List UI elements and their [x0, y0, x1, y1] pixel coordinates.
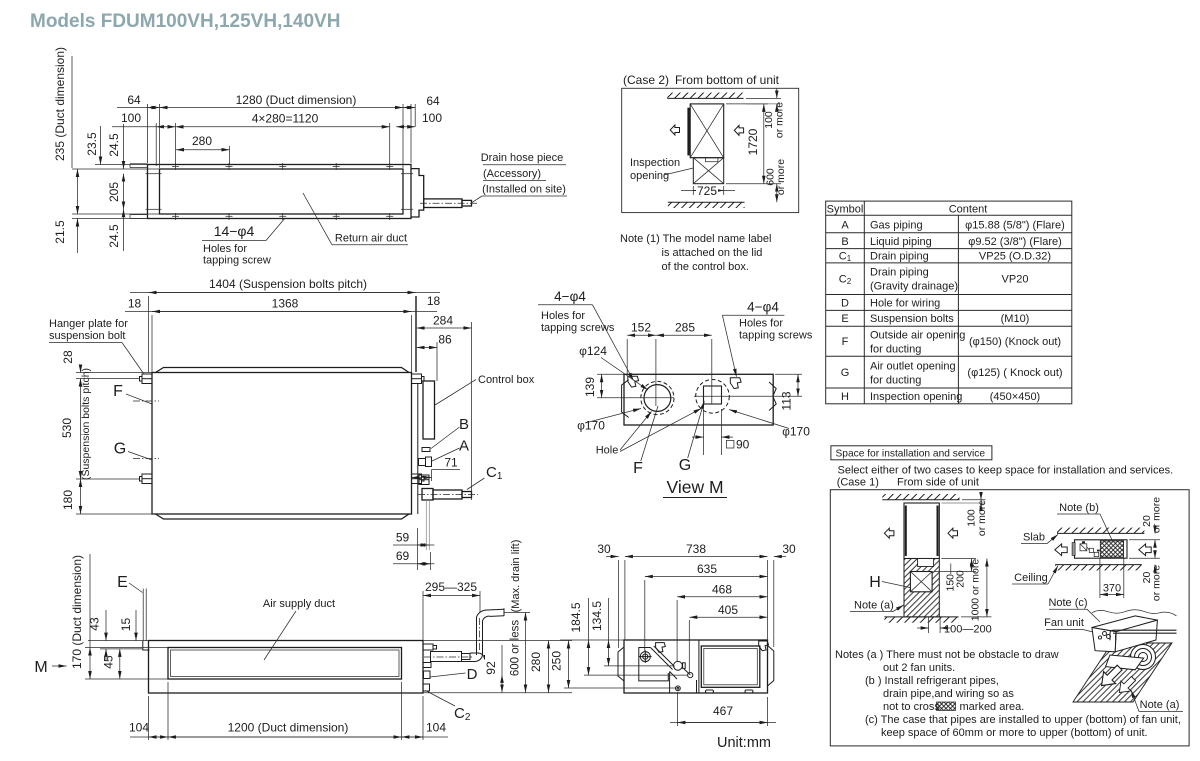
svg-text:Gas piping: Gas piping	[870, 220, 923, 232]
svg-text:134.5: 134.5	[590, 601, 604, 631]
svg-text:A: A	[459, 438, 469, 455]
svg-text:4−φ4: 4−φ4	[554, 289, 586, 304]
svg-text:180: 180	[61, 490, 75, 510]
svg-text:tapping screws: tapping screws	[739, 330, 813, 342]
svg-text:B: B	[841, 236, 848, 248]
svg-text:(φ125) ( Knock out): (φ125) ( Knock out)	[967, 367, 1062, 379]
svg-text:Content: Content	[949, 204, 988, 216]
svg-text:D: D	[841, 298, 849, 310]
svg-text:113: 113	[780, 391, 794, 410]
svg-text:Liquid piping: Liquid piping	[870, 236, 932, 248]
svg-text:Holes for: Holes for	[739, 318, 783, 330]
svg-text:G: G	[841, 367, 850, 379]
svg-text:100: 100	[422, 111, 442, 125]
svg-text:Hanger plate for: Hanger plate for	[49, 318, 128, 330]
svg-text:for ducting: for ducting	[870, 344, 921, 356]
svg-text:250: 250	[550, 651, 564, 671]
svg-text:30: 30	[597, 542, 611, 556]
svg-text:100: 100	[121, 111, 141, 125]
svg-text:for ducting: for ducting	[870, 375, 921, 387]
svg-text:235 (Duct dimension): 235 (Duct dimension)	[53, 47, 67, 161]
svg-text:not to cross: not to cross	[883, 701, 940, 713]
svg-text:H: H	[869, 574, 881, 591]
svg-text:marked area.: marked area.	[960, 701, 1025, 713]
svg-text:Outside air opening: Outside air opening	[870, 330, 965, 342]
svg-text:Control box: Control box	[478, 374, 535, 386]
svg-text:E: E	[117, 574, 128, 591]
svg-text:24.5: 24.5	[107, 224, 121, 248]
svg-text:Slab: Slab	[1023, 532, 1045, 544]
svg-text:Holes for: Holes for	[203, 243, 247, 255]
svg-text:1200 (Duct dimension): 1200 (Duct dimension)	[228, 721, 349, 735]
svg-text:(φ150) (Knock out): (φ150) (Knock out)	[969, 336, 1061, 348]
svg-text:170 (Duct dimension): 170 (Duct dimension)	[70, 555, 84, 669]
svg-text:out 2 fan units.: out 2 fan units.	[883, 662, 955, 674]
svg-text:Select either of two cases to: Select either of two cases to keep space…	[838, 465, 1174, 477]
svg-text:200: 200	[955, 570, 967, 588]
svg-text:C2: C2	[454, 705, 471, 723]
svg-text:59: 59	[396, 531, 410, 545]
svg-text:drain pipe,and wiring so as: drain pipe,and wiring so as	[883, 688, 1014, 700]
svg-text:4×280=1120: 4×280=1120	[252, 112, 319, 126]
svg-text:(c) The case that pipes are i: (c) The case that pipes are installed to…	[865, 714, 1181, 726]
svg-text:is attached on the lid: is attached on the lid	[662, 247, 763, 259]
svg-text:D: D	[467, 666, 478, 683]
svg-text:or more: or more	[1151, 497, 1163, 533]
svg-text:(Suspension bolts pitch): (Suspension bolts pitch)	[80, 368, 92, 480]
svg-text:468: 468	[712, 583, 732, 597]
svg-text:(Accessory): (Accessory)	[483, 168, 541, 180]
svg-text:Note (b): Note (b)	[1059, 502, 1099, 514]
svg-text:F: F	[633, 460, 643, 477]
svg-text:or more: or more	[1151, 565, 1163, 601]
svg-text:F: F	[842, 336, 849, 348]
svg-text:(Case 1): (Case 1)	[837, 477, 879, 489]
svg-text:Note (a): Note (a)	[854, 600, 894, 612]
svg-text:45: 45	[102, 655, 116, 669]
svg-text:18: 18	[427, 294, 441, 308]
svg-text:(Installed on site): (Installed on site)	[482, 184, 566, 196]
svg-text:or more: or more	[976, 500, 988, 536]
svg-text:43: 43	[88, 617, 102, 631]
svg-text:Holes for: Holes for	[541, 310, 585, 322]
svg-text:64: 64	[127, 93, 141, 107]
svg-text:(b ) Install refrigerant pipe: (b ) Install refrigerant pipes,	[865, 675, 999, 687]
svg-text:467: 467	[713, 704, 733, 718]
svg-text:Drain piping: Drain piping	[870, 251, 929, 263]
svg-text:φ170: φ170	[782, 425, 810, 439]
svg-text:F: F	[113, 383, 123, 400]
svg-text:or more: or more	[774, 102, 786, 138]
svg-text:VP25 (O.D.32): VP25 (O.D.32)	[979, 251, 1051, 263]
svg-text:Space for installation and ser: Space for installation and service	[836, 449, 986, 460]
svg-text:E: E	[841, 313, 848, 325]
svg-text:Models FDUM100VH,125VH,140VH: Models FDUM100VH,125VH,140VH	[30, 11, 340, 32]
svg-text:14−φ4: 14−φ4	[214, 223, 255, 239]
svg-text:280: 280	[529, 652, 543, 672]
svg-text:View M: View M	[666, 477, 723, 497]
svg-text:Air outlet opening: Air outlet opening	[870, 361, 956, 373]
svg-text:184.5: 184.5	[569, 602, 583, 632]
svg-text:φ170: φ170	[577, 419, 605, 433]
svg-text:From side of unit: From side of unit	[897, 477, 979, 489]
svg-text:30: 30	[782, 542, 796, 556]
svg-text:Ceiling: Ceiling	[1014, 572, 1048, 584]
svg-text:86: 86	[438, 333, 452, 347]
svg-text:725: 725	[697, 184, 717, 198]
svg-text:370: 370	[1103, 582, 1121, 594]
svg-text:B: B	[459, 416, 469, 433]
svg-text:635: 635	[697, 562, 717, 576]
svg-text:keep space of 60mm or more to: keep space of 60mm or more to upper (bot…	[881, 727, 1148, 739]
svg-text:H: H	[841, 391, 849, 403]
svg-text:1368: 1368	[272, 297, 299, 311]
svg-text:139: 139	[583, 377, 597, 397]
svg-text:90: 90	[736, 437, 750, 451]
svg-text:Symbol: Symbol	[827, 204, 864, 216]
svg-text:Hole for wiring: Hole for wiring	[870, 298, 940, 310]
svg-text:21.5: 21.5	[53, 220, 67, 244]
svg-text:Fan unit: Fan unit	[1044, 617, 1084, 629]
svg-text:(M10): (M10)	[1001, 313, 1030, 325]
svg-text:1280 (Duct dimension): 1280 (Duct dimension)	[236, 93, 357, 107]
svg-text:64: 64	[426, 94, 440, 108]
svg-text:(Max. drain lift): (Max. drain lift)	[510, 540, 522, 613]
svg-text:104: 104	[129, 721, 149, 735]
svg-text:C1: C1	[839, 251, 852, 264]
svg-text:530: 530	[60, 418, 74, 438]
svg-text:of the control box.: of the control box.	[662, 261, 749, 273]
svg-text:104: 104	[426, 721, 446, 735]
svg-text:Inspection opening: Inspection opening	[870, 391, 962, 403]
svg-text:VP20: VP20	[1002, 274, 1029, 286]
svg-text:φ9.52 (3/8") (Flare): φ9.52 (3/8") (Flare)	[968, 236, 1062, 248]
svg-text:152: 152	[631, 321, 651, 335]
svg-text:100—200: 100—200	[944, 624, 992, 636]
svg-text:(Case 2): (Case 2)	[623, 73, 669, 87]
svg-text:18: 18	[128, 297, 142, 311]
svg-text:15: 15	[119, 618, 133, 632]
svg-text:M: M	[34, 659, 47, 676]
svg-text:Drain hose piece: Drain hose piece	[481, 152, 564, 164]
svg-text:1404 (Suspension bolts pitch): 1404 (Suspension bolts pitch)	[209, 277, 367, 291]
svg-text:295—325: 295—325	[425, 580, 477, 594]
svg-text:A: A	[841, 220, 849, 232]
svg-text:From bottom of unit: From bottom of unit	[675, 73, 780, 87]
svg-text:φ124: φ124	[579, 344, 607, 358]
svg-text:28: 28	[61, 350, 75, 364]
svg-text:Note (1) The model name labe: Note (1) The model name label	[620, 233, 771, 245]
svg-text:69: 69	[396, 549, 410, 563]
svg-text:Drain piping: Drain piping	[870, 267, 929, 279]
svg-text:284: 284	[433, 314, 453, 328]
svg-text:92: 92	[484, 661, 498, 675]
svg-text:600 or less: 600 or less	[510, 620, 522, 677]
svg-text:Unit:mm: Unit:mm	[717, 735, 771, 751]
svg-text:C2: C2	[839, 274, 852, 287]
svg-text:Hole: Hole	[596, 445, 619, 457]
svg-text:G: G	[114, 441, 126, 458]
svg-text:Air supply duct: Air supply duct	[263, 598, 335, 610]
svg-text:(Gravity drainage): (Gravity drainage)	[870, 281, 958, 293]
svg-text:G: G	[679, 457, 691, 474]
svg-text:1720: 1720	[746, 128, 760, 155]
svg-text:suspension bolt: suspension bolt	[49, 330, 125, 342]
svg-text:205: 205	[107, 182, 121, 202]
svg-text:tapping screws: tapping screws	[541, 322, 615, 334]
svg-text:C1: C1	[486, 464, 503, 482]
svg-text:1000 or more: 1000 or more	[970, 559, 982, 622]
svg-text:738: 738	[686, 542, 706, 556]
svg-text:4−φ4: 4−φ4	[747, 300, 779, 315]
svg-text:Notes (a ) There must not be: Notes (a ) There must not be obstacle to…	[835, 649, 1059, 661]
svg-text:71: 71	[444, 456, 458, 470]
svg-text:Inspection: Inspection	[630, 157, 680, 169]
svg-text:φ15.88 (5/8") (Flare): φ15.88 (5/8") (Flare)	[965, 220, 1065, 232]
svg-text:405: 405	[718, 603, 738, 617]
svg-text:24.5: 24.5	[107, 133, 121, 157]
svg-text:Note (c): Note (c)	[1048, 597, 1087, 609]
svg-text:Suspension bolts: Suspension bolts	[870, 313, 954, 325]
svg-text:opening: opening	[630, 170, 669, 182]
svg-text:23.5: 23.5	[85, 132, 99, 156]
svg-text:280: 280	[192, 134, 212, 148]
svg-text:tapping screw: tapping screw	[203, 255, 271, 267]
svg-text:(450×450): (450×450)	[990, 391, 1040, 403]
svg-text:Note (a): Note (a)	[1140, 699, 1180, 711]
svg-text:285: 285	[675, 321, 695, 335]
svg-text:Return air duct: Return air duct	[335, 233, 407, 245]
